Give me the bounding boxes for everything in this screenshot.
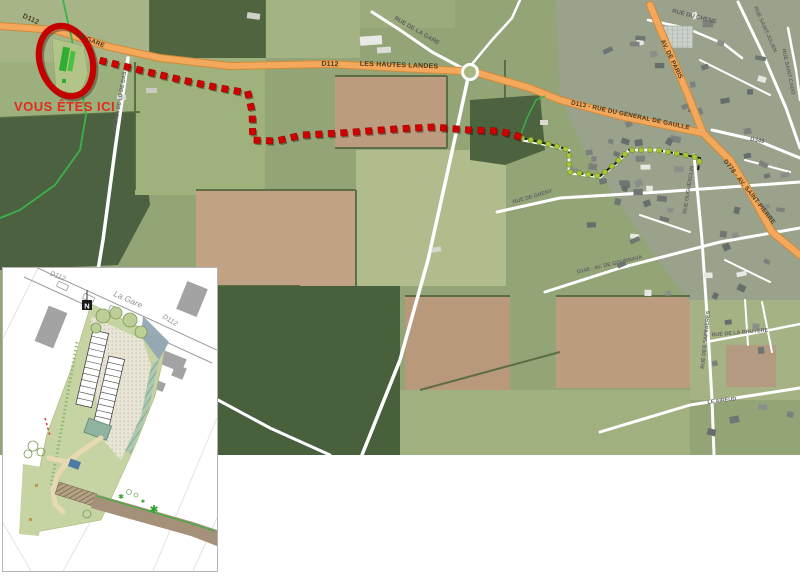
you-are-here-label: VOUS ÊTES ICI bbox=[14, 99, 115, 114]
green-route-dot bbox=[657, 148, 662, 153]
red-route-dot bbox=[328, 130, 335, 137]
green-route-dot bbox=[566, 153, 571, 158]
green-route-dot bbox=[609, 164, 614, 169]
building bbox=[146, 88, 157, 93]
building bbox=[758, 347, 765, 354]
building bbox=[377, 47, 391, 54]
building bbox=[657, 195, 668, 202]
red-route-dot bbox=[303, 131, 310, 138]
svg-text:✱: ✱ bbox=[149, 504, 158, 516]
building bbox=[667, 208, 674, 213]
green-route-dot bbox=[577, 171, 582, 176]
building bbox=[360, 35, 383, 46]
building bbox=[644, 290, 651, 296]
green-route-dot bbox=[630, 147, 635, 152]
red-route-dot bbox=[490, 127, 497, 134]
site-plan-inset: ✱ ✱ ✱ N D112 La Gare D112 bbox=[2, 267, 218, 572]
red-route-dot bbox=[233, 87, 241, 95]
green-route-dot bbox=[568, 170, 573, 175]
green-route-dot bbox=[616, 158, 621, 163]
svg-text:✱: ✱ bbox=[118, 493, 124, 501]
red-route-dot bbox=[123, 63, 131, 71]
building bbox=[586, 149, 593, 155]
svg-text:✱: ✱ bbox=[141, 499, 145, 505]
building bbox=[665, 290, 671, 295]
red-route-dot bbox=[403, 125, 410, 132]
site-marker-area bbox=[52, 38, 88, 94]
red-route-dot bbox=[378, 127, 385, 134]
north-label: N bbox=[84, 302, 89, 311]
red-route-dot bbox=[390, 126, 397, 133]
red-route-dot bbox=[197, 80, 205, 88]
red-route-dot bbox=[340, 129, 347, 136]
building bbox=[588, 163, 597, 170]
building bbox=[758, 404, 767, 410]
red-route-dot bbox=[111, 60, 119, 68]
red-route-dot bbox=[440, 124, 447, 131]
building bbox=[703, 273, 712, 279]
building bbox=[655, 63, 664, 68]
green-route-dot bbox=[639, 147, 644, 152]
building bbox=[591, 156, 597, 161]
building bbox=[633, 189, 643, 196]
green-route-dot bbox=[586, 172, 591, 177]
green-route-dot bbox=[546, 141, 551, 146]
building bbox=[747, 89, 753, 95]
red-route-dot bbox=[415, 124, 422, 131]
building bbox=[634, 139, 643, 147]
red-route-dot bbox=[249, 128, 256, 135]
green-route-dot bbox=[537, 139, 542, 144]
building bbox=[587, 222, 596, 228]
red-route-dot bbox=[148, 69, 156, 77]
red-route-dot bbox=[244, 91, 252, 99]
green-route-dot bbox=[697, 159, 702, 164]
red-route-dot bbox=[221, 85, 229, 93]
red-route-dot bbox=[254, 137, 261, 144]
green-route-dot bbox=[683, 153, 688, 158]
building bbox=[646, 186, 653, 191]
building bbox=[650, 51, 658, 58]
red-route-dot bbox=[465, 126, 472, 133]
green-route-dot bbox=[566, 162, 571, 167]
red-route-dot bbox=[209, 83, 217, 91]
building bbox=[630, 42, 640, 47]
red-route-dot bbox=[428, 124, 435, 131]
red-route-dot bbox=[99, 57, 107, 65]
red-route-dot bbox=[172, 75, 180, 83]
red-route-dot bbox=[353, 128, 360, 135]
red-route-dot bbox=[247, 103, 255, 111]
red-route-dot bbox=[365, 127, 372, 134]
building bbox=[720, 231, 727, 238]
red-route-dot bbox=[290, 133, 298, 141]
building bbox=[636, 156, 645, 162]
green-route-dot bbox=[692, 154, 697, 159]
red-route-dot bbox=[266, 137, 273, 144]
building bbox=[674, 166, 684, 172]
green-route-dot bbox=[674, 151, 679, 156]
building bbox=[619, 180, 627, 185]
building bbox=[640, 165, 650, 170]
roundabout bbox=[463, 65, 478, 80]
red-route-dot bbox=[478, 127, 485, 134]
building bbox=[725, 319, 732, 325]
red-route-dot bbox=[160, 72, 168, 80]
access-map-page: D112 LA GARE D112 LES HAUTES LANDES RUE … bbox=[0, 0, 800, 579]
green-route-dot bbox=[602, 169, 607, 174]
green-route-dot bbox=[665, 149, 670, 154]
red-route-dot bbox=[249, 116, 256, 123]
green-route-dot bbox=[622, 151, 627, 156]
green-route-dot bbox=[528, 137, 533, 142]
building bbox=[540, 120, 548, 125]
red-route-dot bbox=[136, 66, 144, 74]
red-route-dot bbox=[184, 77, 192, 85]
road-label-d112-c: D112 bbox=[321, 61, 338, 69]
green-route-dot bbox=[563, 146, 568, 151]
green-route-dot bbox=[648, 147, 653, 152]
red-route-dot bbox=[278, 136, 286, 144]
red-route-dot bbox=[453, 125, 460, 132]
green-route-dot bbox=[554, 144, 559, 149]
red-route-dot bbox=[315, 131, 322, 138]
green-route-dot bbox=[595, 173, 600, 178]
site-plan: ✱ ✱ ✱ N D112 La Gare D112 bbox=[3, 268, 217, 571]
